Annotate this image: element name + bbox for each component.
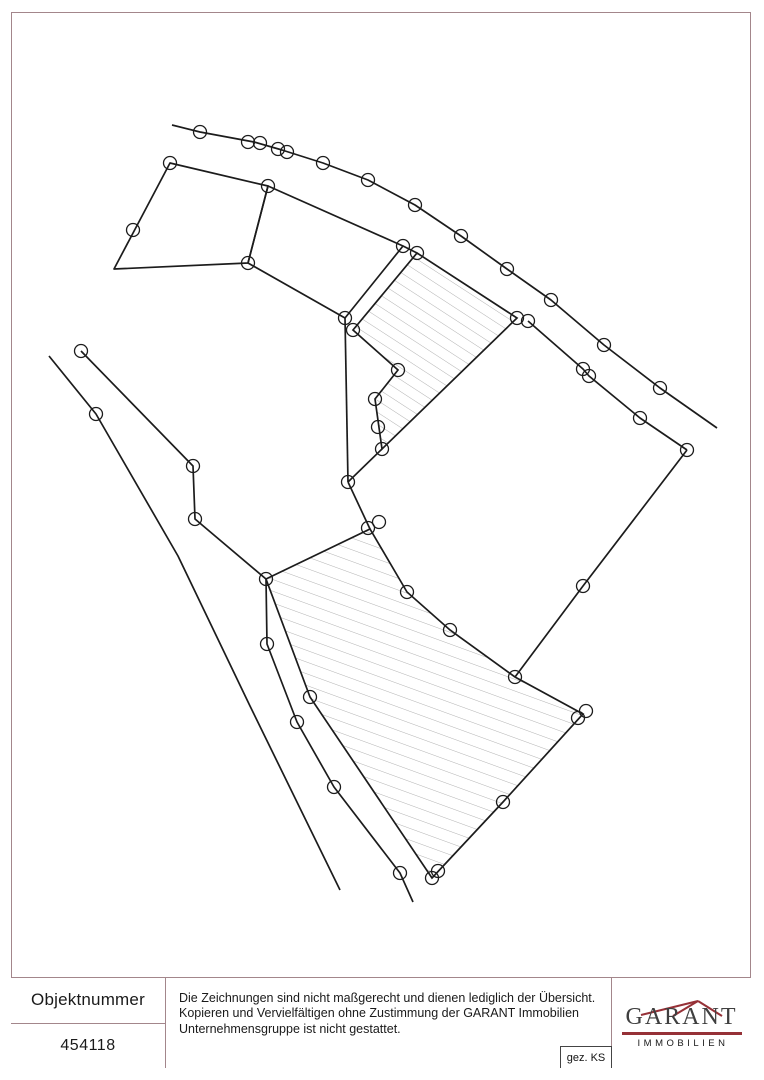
- west-vertical-boundary: [345, 318, 348, 482]
- logo-subtitle: IMMOBILIEN: [625, 1038, 742, 1049]
- garant-logo: GARANT IMMOBILIEN: [622, 997, 742, 1049]
- object-number-label: Objektnummer: [11, 978, 165, 1024]
- lower-hatched-parcel: [266, 529, 583, 878]
- drawn-by-text: gez. KS: [567, 1052, 606, 1064]
- title-block: Objektnummer 454118 Die Zeichnungen sind…: [11, 977, 751, 1068]
- object-number-value: 454118: [11, 1024, 165, 1069]
- site-plan-page: { "page": { "frame_color": "#a3868b", "b…: [0, 0, 764, 1080]
- logo-cell: GARANT IMMOBILIEN: [612, 978, 751, 1068]
- drawn-by-box: gez. KS: [560, 1046, 612, 1068]
- boundary-point-marker: [580, 705, 593, 718]
- hatched-parcels: [266, 253, 583, 878]
- middle-parcel-se-boundary: [515, 450, 687, 677]
- disclaimer-cell: Die Zeichnungen sind nicht maßgerecht un…: [166, 978, 612, 1068]
- north-parcel-1: [114, 163, 268, 269]
- boundary-point-marker: [373, 516, 386, 529]
- upper-hatched-parcel: [353, 253, 517, 449]
- object-number-cell: Objektnummer 454118: [11, 978, 166, 1068]
- site-plan-drawing: [0, 0, 764, 1080]
- middle-parcel-road-boundary: [528, 321, 687, 450]
- logo-name: GARANT: [622, 1005, 742, 1029]
- disclaimer-text: Die Zeichnungen sind nicht maßgerecht un…: [179, 991, 603, 1037]
- logo-rule: [622, 1032, 742, 1035]
